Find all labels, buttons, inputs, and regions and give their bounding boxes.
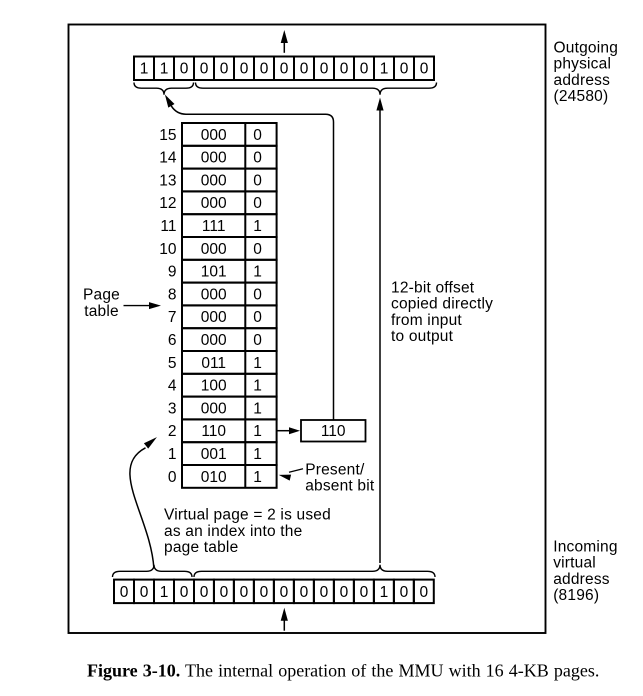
svg-text:1: 1 (253, 423, 262, 440)
svg-text:absent bit: absent bit (305, 478, 375, 495)
svg-text:0: 0 (360, 584, 369, 601)
svg-text:0: 0 (220, 61, 229, 78)
svg-text:Present/: Present/ (305, 461, 365, 478)
svg-text:11: 11 (160, 218, 176, 235)
svg-text:110: 110 (201, 423, 226, 440)
svg-text:0: 0 (253, 309, 262, 326)
svg-text:0: 0 (253, 286, 262, 303)
svg-text:0: 0 (400, 61, 409, 78)
svg-text:000: 000 (201, 172, 227, 189)
svg-text:011: 011 (201, 355, 226, 372)
svg-text:0: 0 (340, 61, 349, 78)
svg-text:000: 000 (201, 127, 227, 144)
svg-text:0: 0 (280, 61, 289, 78)
svg-text:001: 001 (201, 446, 227, 463)
svg-text:virtual: virtual (553, 555, 596, 572)
svg-text:0: 0 (253, 241, 262, 258)
svg-text:0: 0 (400, 584, 409, 601)
svg-text:12: 12 (159, 195, 176, 212)
svg-text:Outgoing: Outgoing (554, 40, 619, 57)
svg-text:0: 0 (240, 61, 249, 78)
svg-text:0: 0 (253, 195, 262, 212)
svg-text:000: 000 (201, 332, 227, 349)
svg-text:1: 1 (253, 378, 262, 395)
svg-text:6: 6 (168, 332, 177, 349)
svg-text:13: 13 (159, 172, 176, 189)
svg-text:0: 0 (180, 584, 189, 601)
svg-text:4: 4 (168, 378, 177, 395)
svg-text:0: 0 (140, 584, 149, 601)
svg-text:0: 0 (253, 150, 262, 167)
svg-text:1: 1 (253, 400, 262, 417)
svg-text:Figure 3-10. The internal oper: Figure 3-10. The internal operation of t… (87, 661, 599, 681)
svg-text:Page: Page (83, 287, 120, 304)
svg-text:1: 1 (253, 264, 262, 281)
svg-text:from input: from input (391, 312, 462, 329)
svg-text:000: 000 (201, 286, 227, 303)
svg-text:12-bit offset: 12-bit offset (391, 279, 475, 296)
svg-text:0: 0 (280, 584, 289, 601)
svg-text:5: 5 (168, 355, 177, 372)
svg-text:1: 1 (160, 584, 169, 601)
svg-text:15: 15 (159, 127, 176, 144)
svg-text:0: 0 (120, 584, 129, 601)
svg-text:9: 9 (168, 264, 177, 281)
svg-text:(8196): (8196) (553, 587, 599, 604)
svg-text:1: 1 (168, 446, 177, 463)
svg-text:3: 3 (168, 400, 177, 417)
svg-text:0: 0 (253, 332, 262, 349)
svg-text:Virtual page = 2 is used: Virtual page = 2 is used (164, 507, 331, 524)
svg-text:0: 0 (420, 61, 429, 78)
svg-text:1: 1 (380, 584, 389, 601)
svg-text:0: 0 (360, 61, 369, 78)
svg-text:0: 0 (300, 584, 309, 601)
svg-text:0: 0 (220, 584, 229, 601)
svg-text:address: address (553, 571, 610, 588)
svg-text:000: 000 (201, 309, 227, 326)
svg-text:1: 1 (253, 446, 262, 463)
svg-text:000: 000 (201, 400, 227, 417)
svg-text:1: 1 (160, 61, 169, 78)
svg-text:110: 110 (321, 423, 346, 440)
svg-text:physical: physical (554, 56, 612, 73)
svg-text:000: 000 (201, 241, 227, 258)
svg-text:000: 000 (201, 195, 227, 212)
svg-text:0: 0 (240, 584, 249, 601)
svg-text:as an index into the: as an index into the (164, 523, 302, 540)
svg-text:0: 0 (180, 61, 189, 78)
svg-text:1: 1 (380, 61, 389, 78)
svg-text:14: 14 (159, 150, 177, 167)
svg-text:2: 2 (168, 423, 177, 440)
svg-text:0: 0 (168, 469, 177, 486)
svg-text:1: 1 (253, 218, 262, 235)
svg-text:101: 101 (201, 264, 227, 281)
svg-text:10: 10 (159, 241, 177, 258)
svg-text:0: 0 (260, 61, 269, 78)
svg-text:0: 0 (300, 61, 309, 78)
svg-text:copied directly: copied directly (391, 296, 493, 313)
svg-text:0: 0 (419, 584, 428, 601)
svg-text:0: 0 (253, 127, 262, 144)
svg-text:(24580): (24580) (554, 88, 609, 105)
svg-text:table: table (84, 303, 119, 320)
svg-text:0: 0 (320, 61, 329, 78)
svg-text:0: 0 (320, 584, 329, 601)
svg-text:111: 111 (202, 218, 226, 235)
svg-text:000: 000 (201, 150, 227, 167)
svg-text:Incoming: Incoming (553, 538, 618, 555)
svg-text:010: 010 (201, 469, 227, 486)
svg-text:0: 0 (260, 584, 269, 601)
svg-text:1: 1 (253, 355, 262, 372)
svg-text:0: 0 (253, 172, 262, 189)
svg-text:0: 0 (200, 584, 209, 601)
svg-text:8: 8 (168, 286, 177, 303)
svg-text:7: 7 (168, 309, 177, 326)
svg-text:100: 100 (201, 378, 227, 395)
svg-text:page table: page table (164, 539, 238, 556)
svg-text:0: 0 (200, 61, 209, 78)
svg-text:1: 1 (253, 469, 262, 486)
svg-text:0: 0 (340, 584, 349, 601)
svg-text:to output: to output (391, 328, 454, 345)
svg-text:1: 1 (140, 61, 149, 78)
svg-text:address: address (554, 72, 611, 89)
